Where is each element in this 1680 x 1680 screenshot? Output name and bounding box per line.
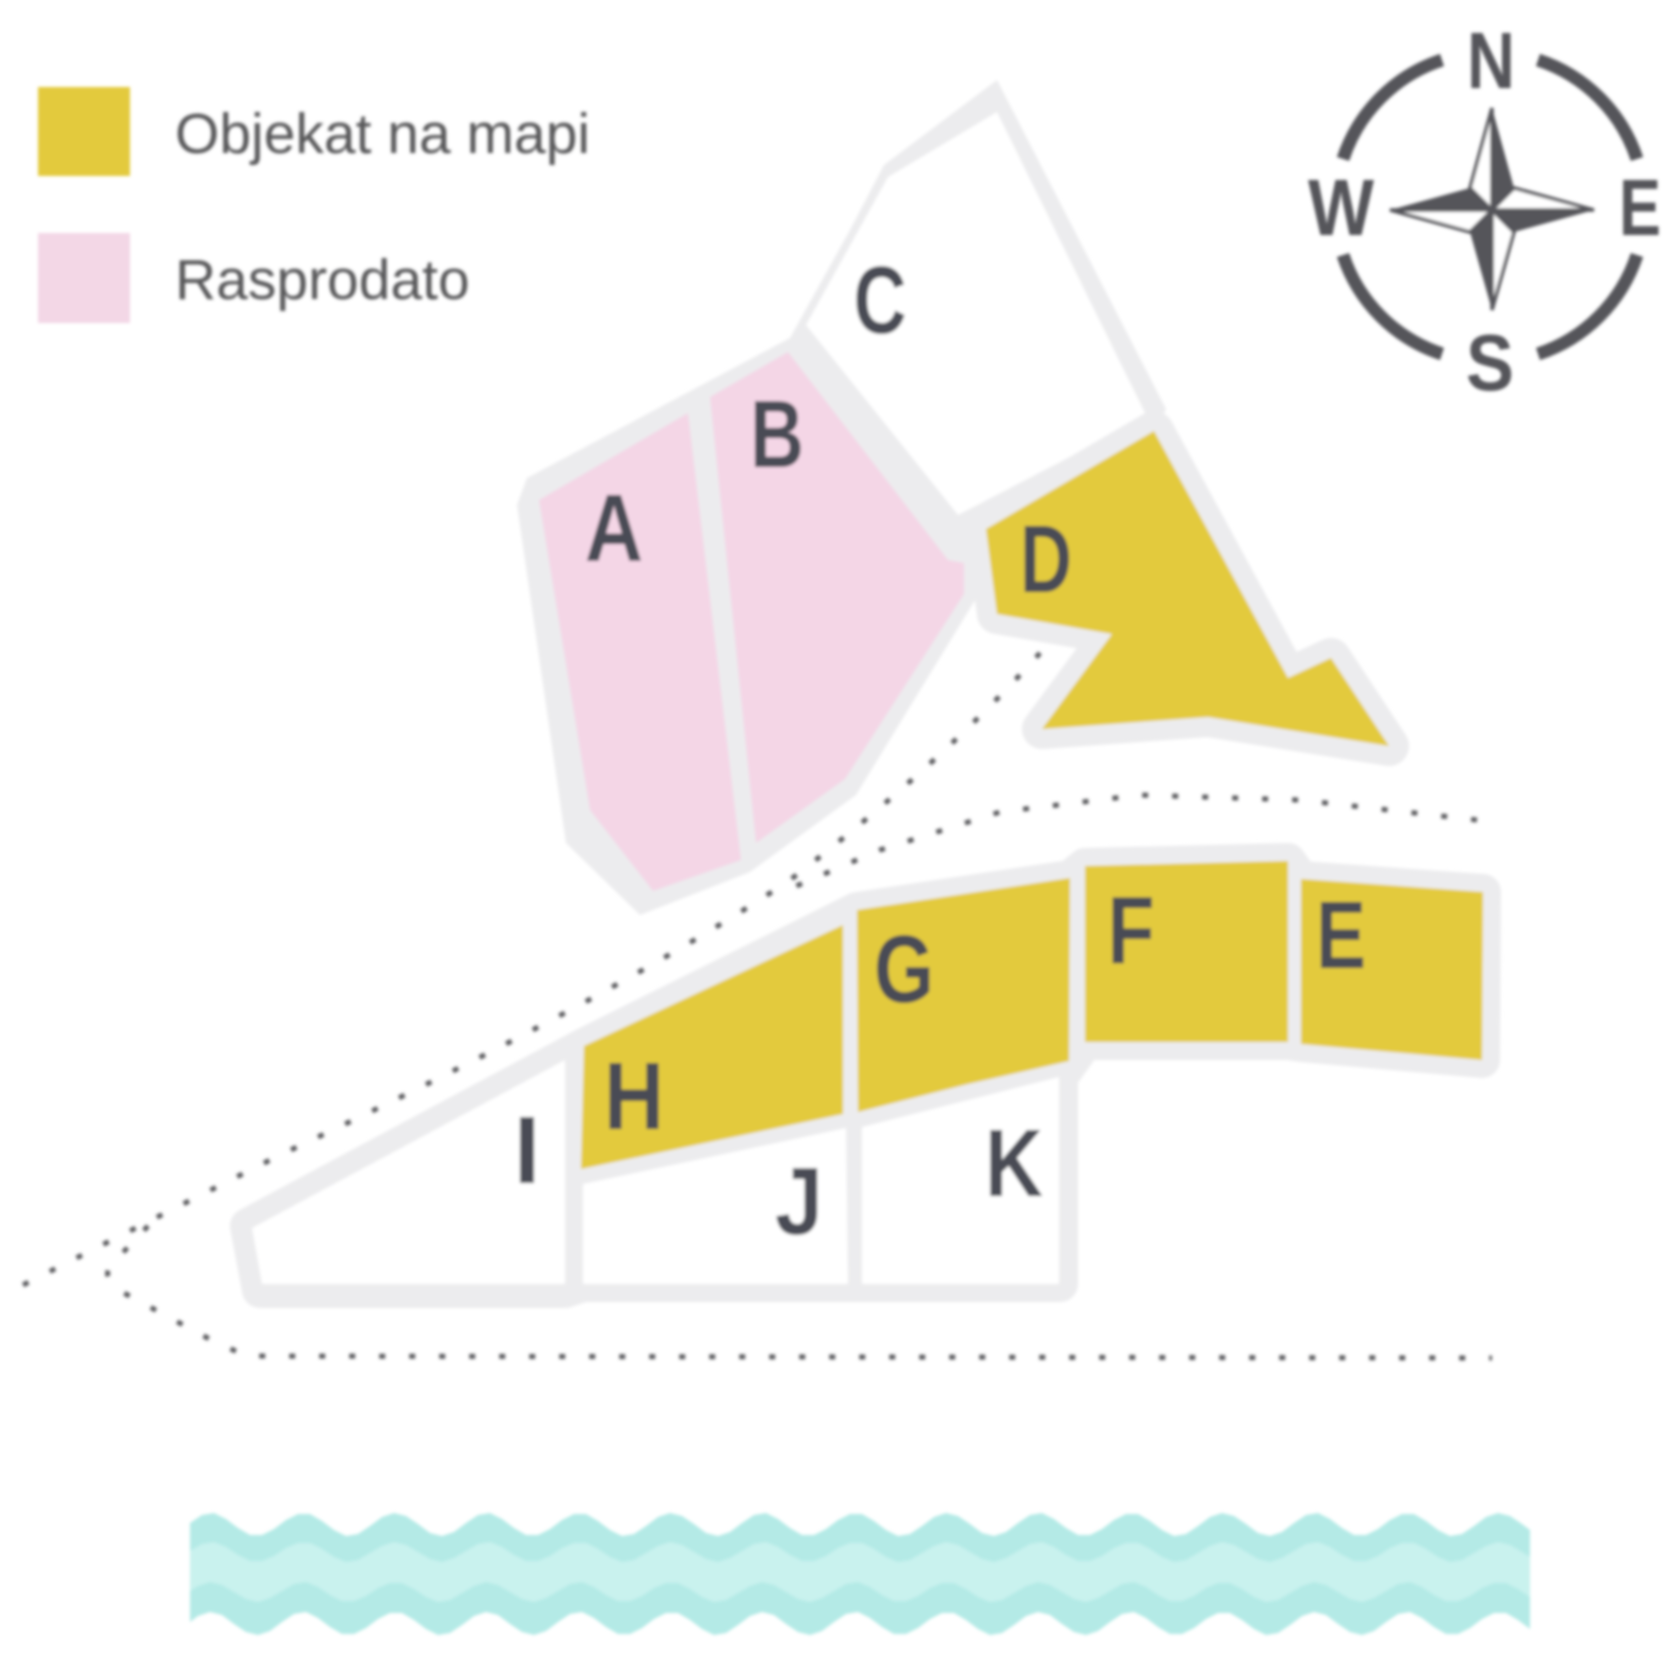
svg-text:H: H: [604, 1043, 664, 1150]
svg-text:E: E: [1619, 163, 1661, 252]
svg-text:K: K: [985, 1110, 1043, 1217]
svg-text:N: N: [1467, 16, 1515, 105]
svg-text:E: E: [1316, 882, 1366, 989]
svg-text:Objekat na mapi: Objekat na mapi: [175, 102, 590, 166]
svg-text:D: D: [1020, 506, 1072, 613]
svg-text:G: G: [874, 916, 934, 1023]
svg-text:F: F: [1108, 877, 1155, 984]
svg-text:W: W: [1308, 163, 1374, 252]
svg-text:C: C: [854, 247, 907, 354]
svg-text:S: S: [1466, 318, 1514, 407]
svg-text:I: I: [514, 1097, 541, 1204]
svg-text:B: B: [750, 381, 804, 488]
svg-text:A: A: [585, 475, 643, 582]
svg-text:Rasprodato: Rasprodato: [175, 248, 470, 312]
svg-text:J: J: [775, 1148, 823, 1255]
